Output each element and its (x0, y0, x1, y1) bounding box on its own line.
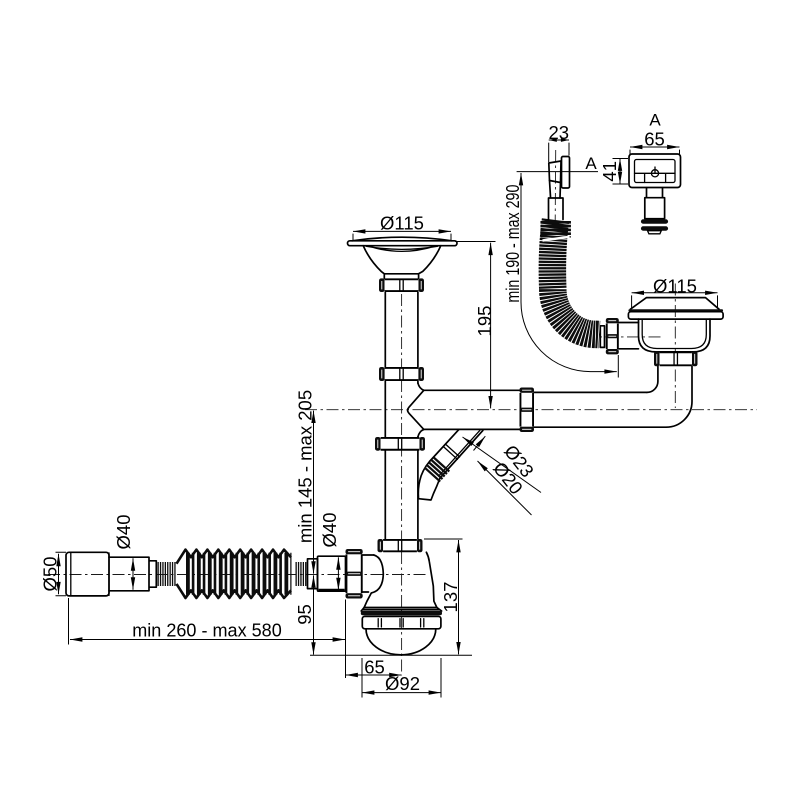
svg-text:A: A (585, 154, 597, 173)
svg-text:41: 41 (599, 161, 620, 182)
svg-text:Ø40: Ø40 (113, 515, 134, 550)
svg-text:Ø115: Ø115 (653, 275, 697, 296)
svg-text:min 145 - max 205: min 145 - max 205 (295, 390, 316, 543)
svg-text:65: 65 (644, 128, 665, 149)
svg-text:Ø92: Ø92 (385, 673, 420, 694)
svg-text:23: 23 (549, 122, 570, 143)
svg-text:137: 137 (440, 582, 461, 613)
svg-text:Ø50: Ø50 (39, 557, 60, 592)
svg-text:195: 195 (474, 306, 495, 337)
svg-text:min 190 - max 290: min 190 - max 290 (502, 185, 523, 303)
svg-text:95: 95 (294, 604, 315, 625)
svg-text:Ø115: Ø115 (380, 213, 424, 234)
svg-text:min 260 - max 580: min 260 - max 580 (132, 620, 282, 641)
svg-text:Ø40: Ø40 (319, 513, 340, 548)
svg-text:65: 65 (364, 656, 385, 677)
svg-text:A: A (649, 111, 661, 130)
